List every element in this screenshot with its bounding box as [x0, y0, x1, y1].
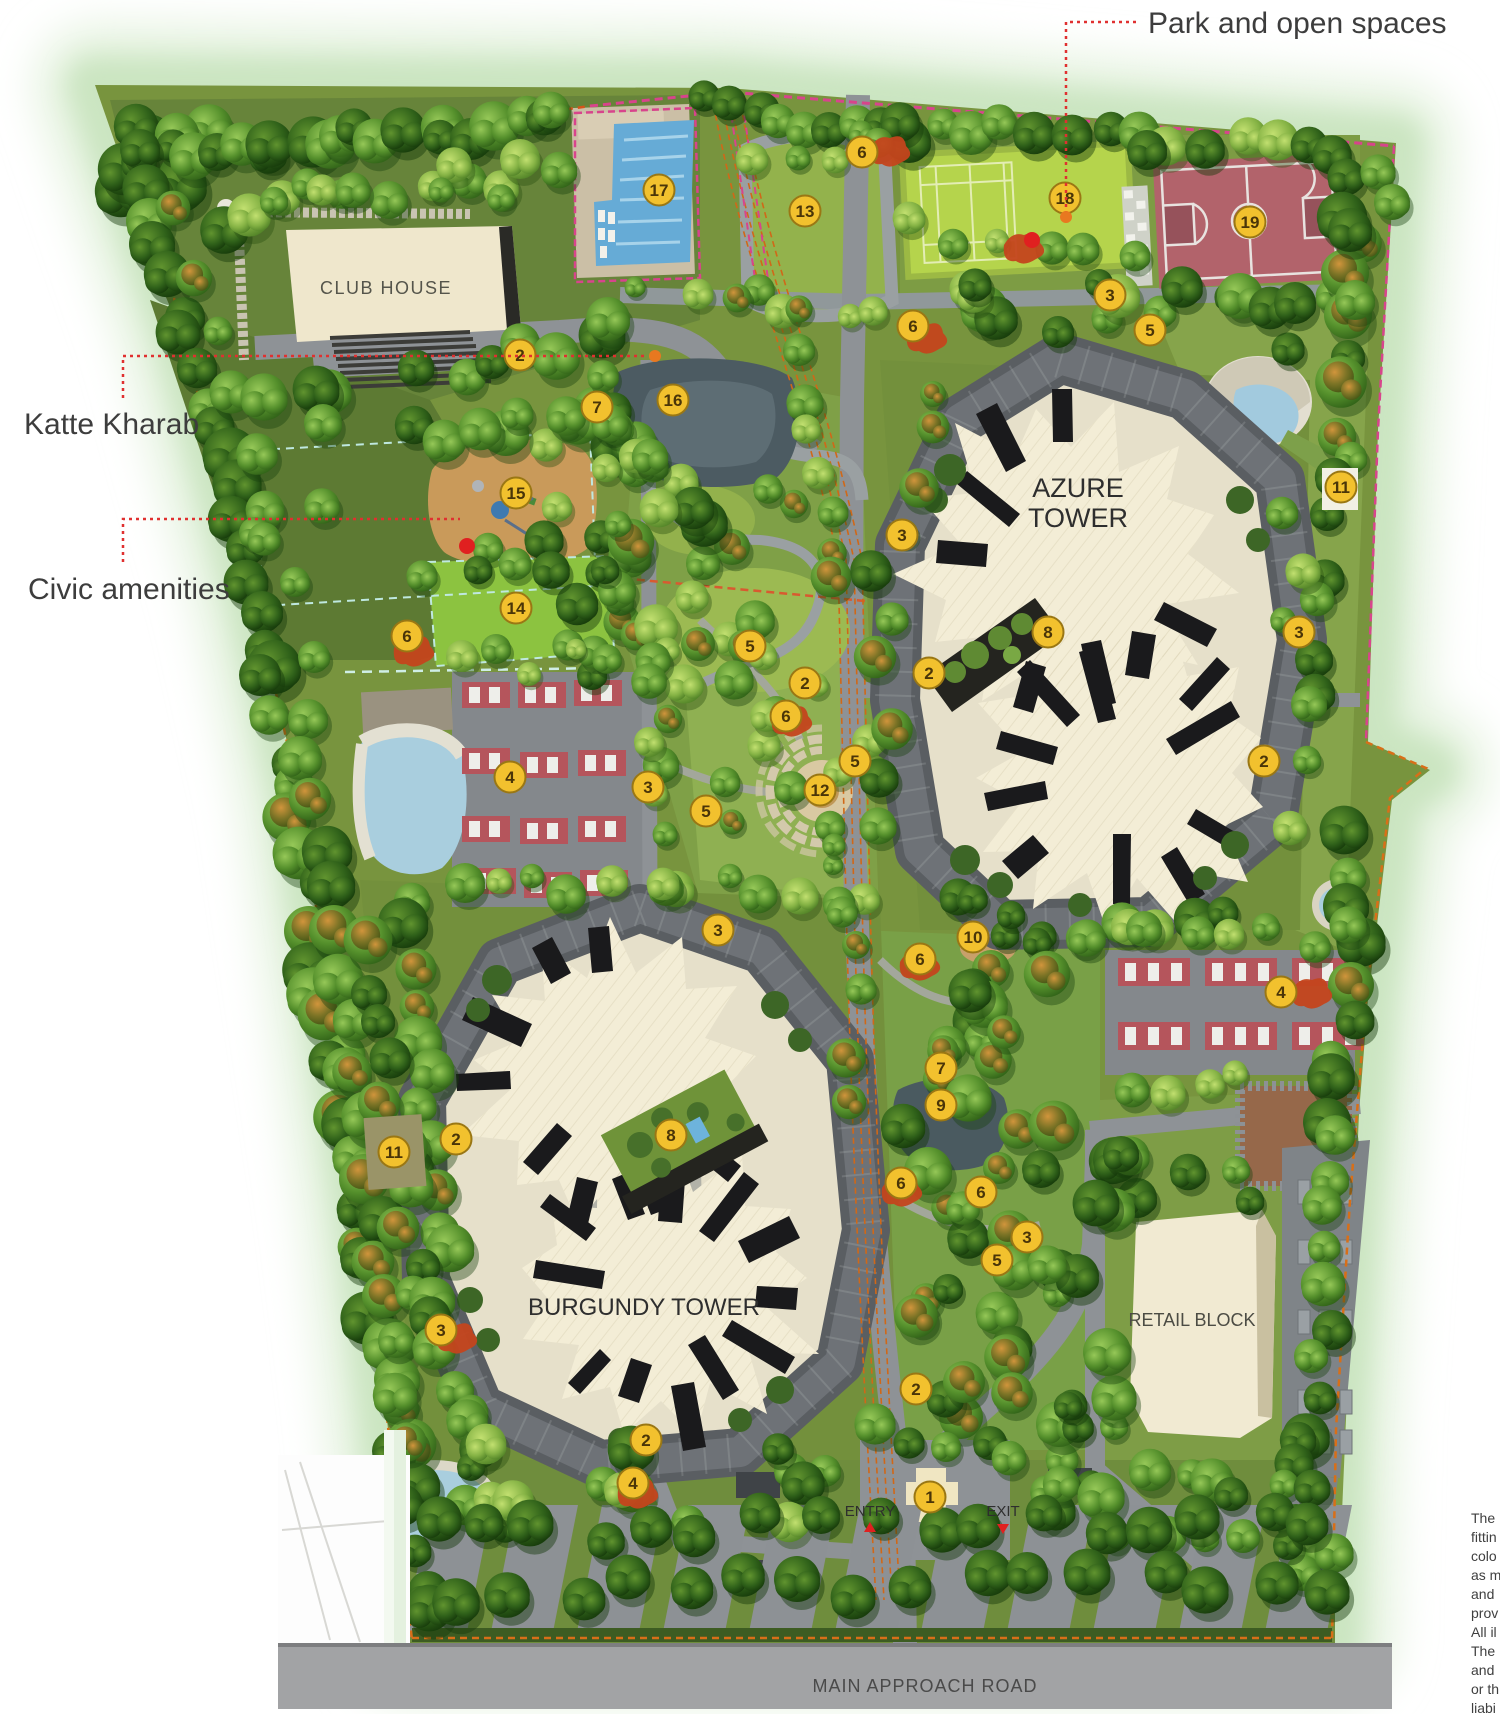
svg-text:3: 3 [713, 921, 722, 940]
svg-text:and: and [1471, 1662, 1494, 1678]
svg-text:Park and open spaces: Park and open spaces [1148, 7, 1447, 40]
svg-text:5: 5 [745, 637, 754, 656]
svg-text:3: 3 [897, 526, 906, 545]
svg-text:6: 6 [976, 1183, 985, 1202]
svg-text:8: 8 [666, 1126, 675, 1145]
svg-text:2: 2 [800, 674, 809, 693]
svg-text:7: 7 [592, 398, 601, 417]
svg-text:1: 1 [925, 1488, 934, 1507]
svg-text:3: 3 [1022, 1228, 1031, 1247]
svg-text:11: 11 [1332, 478, 1350, 497]
svg-text:6: 6 [857, 143, 866, 162]
svg-text:6: 6 [908, 317, 917, 336]
svg-text:2: 2 [924, 664, 933, 683]
svg-text:TOWER: TOWER [1028, 503, 1128, 533]
svg-text:5: 5 [701, 802, 710, 821]
svg-text:3: 3 [643, 778, 652, 797]
svg-text:3: 3 [1294, 623, 1303, 642]
svg-text:fittin: fittin [1471, 1529, 1497, 1545]
svg-text:3: 3 [1105, 286, 1114, 305]
svg-text:15: 15 [507, 484, 526, 503]
svg-text:12: 12 [811, 781, 830, 800]
svg-text:11: 11 [385, 1143, 403, 1162]
svg-text:13: 13 [796, 202, 815, 221]
svg-text:AZURE: AZURE [1032, 473, 1124, 503]
svg-text:Katte Kharab: Katte Kharab [24, 408, 199, 441]
svg-text:prov: prov [1471, 1605, 1498, 1621]
svg-text:and: and [1471, 1586, 1494, 1602]
svg-text:RETAIL BLOCK: RETAIL BLOCK [1128, 1310, 1255, 1330]
svg-text:9: 9 [936, 1096, 945, 1115]
svg-text:The: The [1471, 1643, 1495, 1659]
svg-text:2: 2 [641, 1431, 650, 1450]
svg-text:2: 2 [911, 1380, 920, 1399]
svg-text:BURGUNDY TOWER: BURGUNDY TOWER [528, 1294, 760, 1321]
svg-text:The: The [1471, 1510, 1495, 1526]
svg-text:All il: All il [1471, 1624, 1497, 1640]
svg-text:4: 4 [1276, 983, 1286, 1002]
svg-text:6: 6 [781, 707, 790, 726]
svg-text:5: 5 [1145, 321, 1154, 340]
svg-text:16: 16 [664, 391, 683, 410]
svg-text:17: 17 [650, 181, 669, 200]
svg-text:6: 6 [915, 950, 924, 969]
svg-text:14: 14 [507, 599, 526, 618]
svg-text:CLUB HOUSE: CLUB HOUSE [320, 278, 452, 298]
svg-text:6: 6 [402, 627, 411, 646]
svg-text:4: 4 [505, 768, 515, 787]
svg-text:as m: as m [1471, 1567, 1500, 1583]
svg-text:4: 4 [628, 1474, 638, 1493]
svg-text:5: 5 [850, 752, 859, 771]
svg-text:19: 19 [1241, 213, 1260, 232]
svg-text:liabi: liabi [1471, 1700, 1496, 1714]
svg-text:10: 10 [964, 928, 983, 947]
svg-text:or th: or th [1471, 1681, 1499, 1697]
svg-text:2: 2 [451, 1130, 460, 1149]
svg-text:MAIN APPROACH ROAD: MAIN APPROACH ROAD [812, 1676, 1037, 1696]
svg-text:5: 5 [992, 1251, 1001, 1270]
svg-text:7: 7 [936, 1059, 945, 1078]
svg-text:3: 3 [436, 1321, 445, 1340]
svg-text:6: 6 [896, 1174, 905, 1193]
svg-text:Civic amenities: Civic amenities [28, 573, 230, 606]
svg-text:EXIT: EXIT [986, 1503, 1019, 1520]
svg-text:8: 8 [1043, 623, 1052, 642]
svg-text:ENTRY: ENTRY [845, 1503, 896, 1520]
svg-text:colo: colo [1471, 1548, 1497, 1564]
svg-text:2: 2 [1259, 752, 1268, 771]
